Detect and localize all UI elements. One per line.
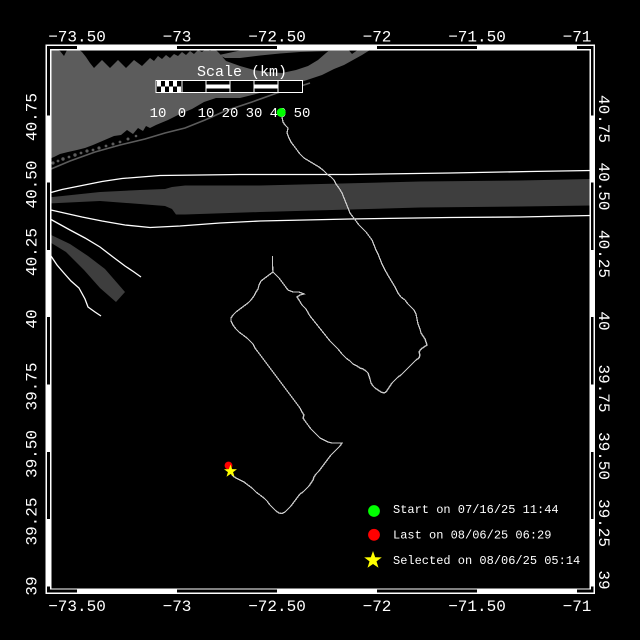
svg-text:39: 39 [24,576,42,595]
svg-text:−71.50: −71.50 [448,29,506,47]
svg-text:20: 20 [222,106,239,122]
svg-text:−71: −71 [563,29,592,47]
svg-text:Last on 08/06/25 06:29: Last on 08/06/25 06:29 [393,529,551,543]
svg-text:39.75: 39.75 [24,362,42,410]
svg-text:−73.50: −73.50 [48,29,106,47]
svg-text:−72.50: −72.50 [248,598,306,616]
svg-text:39.50: 39.50 [594,432,612,480]
svg-text:39: 39 [594,570,612,589]
svg-text:39.25: 39.25 [24,497,42,545]
svg-text:39.50: 39.50 [24,430,42,478]
svg-text:−72: −72 [363,598,392,616]
svg-text:Scale (km): Scale (km) [197,64,287,81]
svg-text:40.25: 40.25 [594,230,612,278]
svg-text:−72: −72 [363,29,392,47]
svg-text:40: 40 [24,309,42,328]
svg-text:50: 50 [294,106,311,122]
svg-text:Selected on 08/06/25 05:14: Selected on 08/06/25 05:14 [393,554,580,568]
svg-text:40: 40 [594,311,612,330]
svg-text:−73.50: −73.50 [48,598,106,616]
svg-text:10: 10 [150,106,167,122]
svg-text:40.75: 40.75 [594,95,612,143]
svg-text:−71.50: −71.50 [448,598,506,616]
svg-text:40.75: 40.75 [24,93,42,141]
svg-text:39.75: 39.75 [594,364,612,412]
svg-text:40.25: 40.25 [24,228,42,276]
svg-text:10: 10 [198,106,215,122]
svg-text:30: 30 [246,106,263,122]
svg-text:39.25: 39.25 [594,499,612,547]
svg-text:40.50: 40.50 [594,162,612,210]
svg-text:0: 0 [178,106,186,122]
svg-text:−73: −73 [163,598,192,616]
svg-text:40.50: 40.50 [24,160,42,208]
svg-text:−73: −73 [163,29,192,47]
svg-text:Start on 07/16/25 11:44: Start on 07/16/25 11:44 [393,503,559,517]
svg-text:−72.50: −72.50 [248,29,306,47]
svg-text:−71: −71 [563,598,592,616]
